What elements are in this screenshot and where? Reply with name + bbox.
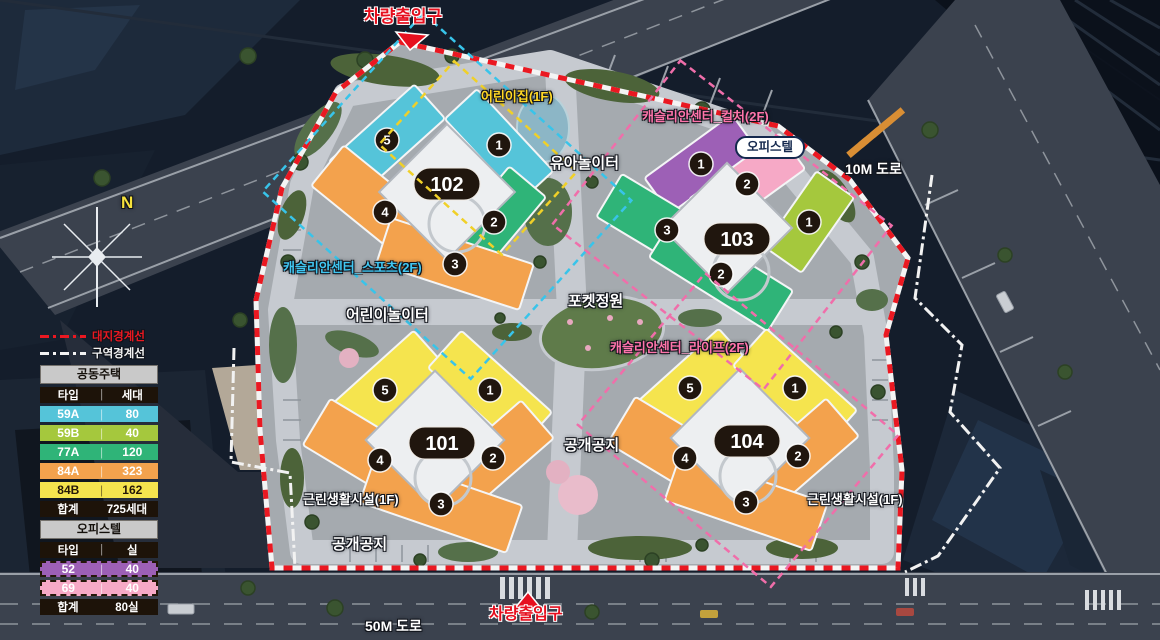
center-sports-label: 캐슬리안센터_스포츠(2F) — [283, 261, 422, 274]
site-boundary-swatch — [40, 335, 86, 338]
district-boundary-label: 구역경계선 — [92, 345, 145, 361]
legend-table-title: 공동주택 — [40, 365, 158, 384]
legend-type-row: 59A|80 — [40, 406, 158, 422]
kids-playground-label: 어린이놀이터 — [346, 308, 429, 323]
officetel-tag: 오피스텔 — [735, 136, 805, 159]
legend-type-row: 69|40 — [40, 580, 158, 596]
legend-district-boundary: 구역경계선 — [40, 347, 158, 359]
legend-panel: 대지경계선 구역경계선 공동주택타입|세대59A|8059B|4077A|120… — [40, 330, 158, 618]
unit-number: 1 — [486, 383, 493, 398]
legend-type-row: 77A|120 — [40, 444, 158, 460]
unit-number: 4 — [681, 451, 689, 466]
neighborhood-left-label: 근린생활시설(1F) — [303, 493, 399, 506]
site-plan-canvas: 51423102123211035142310151423104 — [0, 0, 1160, 640]
legend-type-row: 59B|40 — [40, 425, 158, 441]
entrance-label-top: 차량출입구 — [364, 8, 442, 25]
unit-number: 1 — [791, 381, 798, 396]
daycare-label: 어린이집(1F) — [481, 90, 553, 103]
building-number: 103 — [720, 229, 753, 251]
unit-number: 3 — [437, 497, 444, 512]
unit-number: 3 — [663, 223, 670, 238]
unit-number: 2 — [717, 267, 724, 282]
legend-type-row: 84A|323 — [40, 463, 158, 479]
legend-column-header: 타입|세대 — [40, 387, 158, 403]
center-culture-label: 캐슬리안센터_컬처(2F) — [642, 110, 769, 123]
unit-number: 1 — [495, 138, 502, 153]
district-boundary-swatch — [40, 352, 86, 355]
unit-number: 4 — [381, 205, 389, 220]
legend-total-row: 합계80실 — [40, 599, 158, 615]
open-space-left-label: 공개공지 — [332, 537, 387, 552]
unit-number: 3 — [451, 257, 458, 272]
site-boundary-label: 대지경계선 — [92, 328, 145, 344]
unit-number: 2 — [743, 177, 750, 192]
unit-number: 1 — [805, 215, 812, 230]
site-plan: 51423102123211035142310151423104 차량출입구 어… — [0, 0, 1160, 640]
open-space-center-label: 공개공지 — [564, 438, 619, 453]
compass-north-label: N — [121, 194, 133, 211]
unit-number: 2 — [490, 215, 497, 230]
entrance-label-bottom: 차량출입구 — [489, 607, 563, 623]
legend-total-row: 합계725세대 — [40, 501, 158, 517]
unit-number: 5 — [686, 381, 693, 396]
pocket-garden-label: 포켓정원 — [568, 294, 623, 309]
legend-table-title: 오피스텔 — [40, 520, 158, 539]
cherry-blossom-tree — [339, 348, 359, 368]
legend-column-header: 타입|실 — [40, 542, 158, 558]
legend-tables: 공동주택타입|세대59A|8059B|4077A|12084A|32384B|1… — [40, 365, 158, 615]
unit-number: 1 — [697, 157, 704, 172]
unit-number: 2 — [489, 451, 496, 466]
cherry-blossom-tree — [546, 460, 570, 484]
legend-type-row: 52|40 — [40, 561, 158, 577]
center-life-label: 캐슬리안센터_라이프(2F) — [610, 341, 749, 354]
legend-site-boundary: 대지경계선 — [40, 330, 158, 342]
unit-number: 3 — [742, 495, 749, 510]
unit-number: 2 — [794, 449, 801, 464]
road-50m-label: 50M 도로 — [365, 619, 422, 633]
unit-number: 4 — [376, 453, 384, 468]
building-number: 104 — [730, 431, 764, 453]
legend-type-row: 84B|162 — [40, 482, 158, 498]
building-number: 101 — [425, 433, 458, 455]
neighborhood-right-label: 근린생활시설(1F) — [807, 493, 903, 506]
road-10m-label: 10M 도로 — [845, 162, 902, 176]
building-number: 102 — [430, 174, 463, 196]
unit-number: 5 — [381, 383, 388, 398]
toddler-playground-label: 유아놀이터 — [550, 156, 619, 171]
